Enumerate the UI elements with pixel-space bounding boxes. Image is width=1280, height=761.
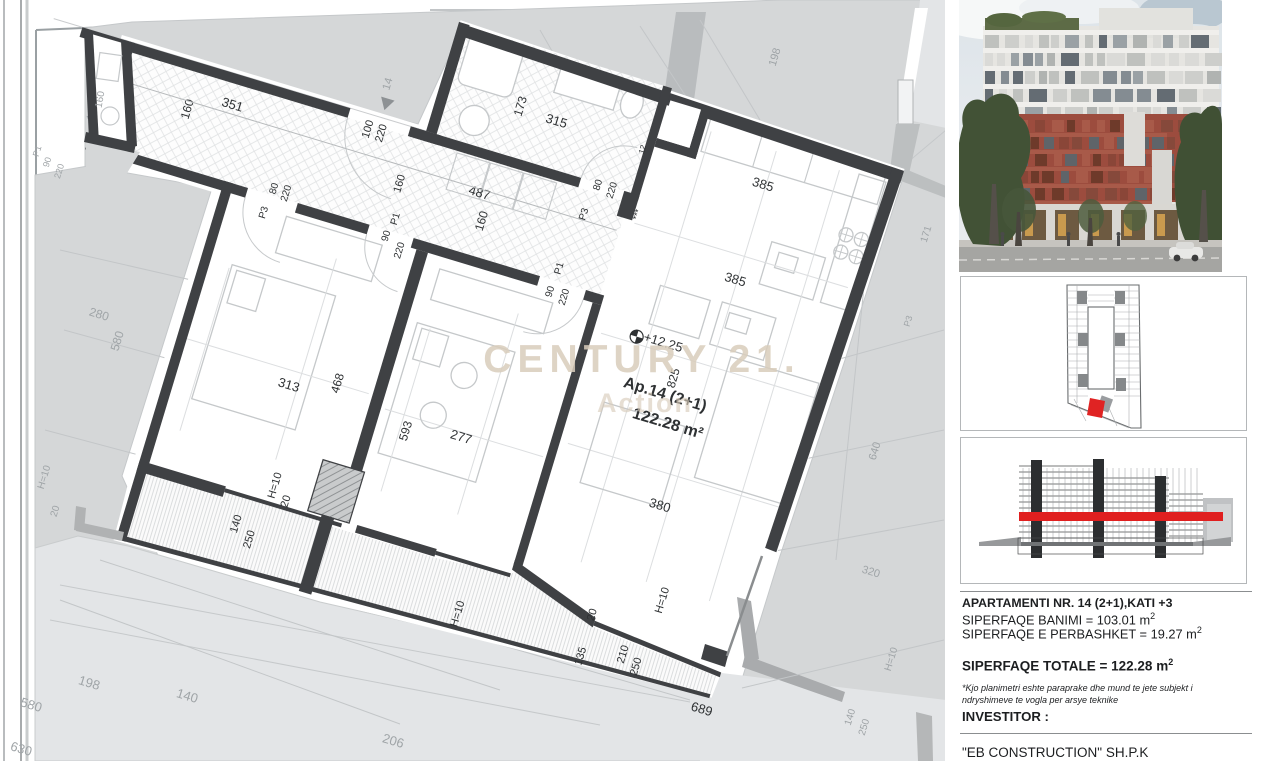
svg-text:Action: Action	[597, 388, 693, 418]
svg-text:CENTURY 21.: CENTURY 21.	[483, 338, 800, 381]
